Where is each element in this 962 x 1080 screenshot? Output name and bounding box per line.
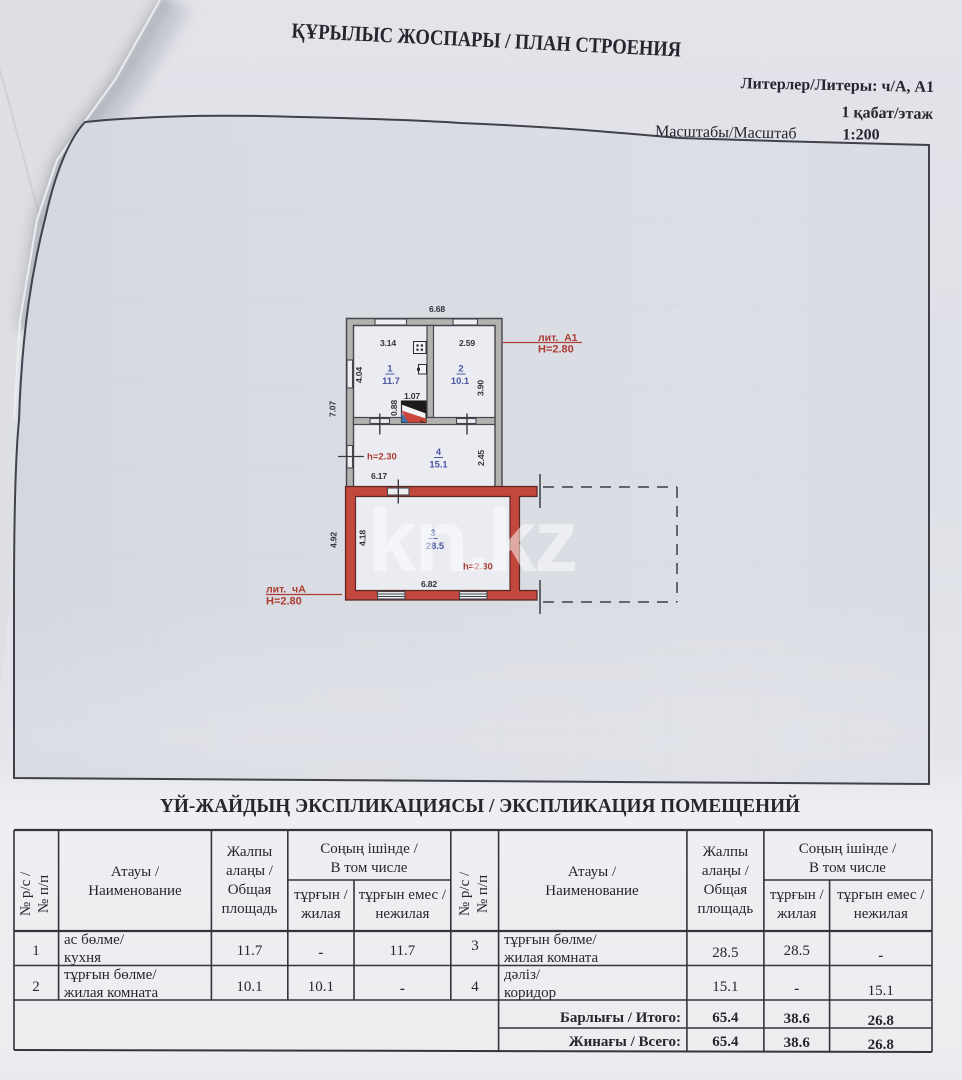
svg-text:2.59: 2.59 (459, 338, 475, 348)
svg-text:3.90: 3.90 (476, 380, 486, 396)
svg-text:Общая: Общая (704, 882, 748, 898)
svg-text:алаңы /: алаңы / (702, 863, 750, 879)
svg-text:тұрғын емес /: тұрғын емес / (837, 887, 925, 903)
svg-text:Атауы /: Атауы / (568, 864, 617, 880)
svg-text:Общая: Общая (228, 882, 272, 898)
svg-text:Соңың ішінде /: Соңың ішінде / (320, 841, 418, 857)
svg-text:В том числе: В том числе (331, 860, 408, 876)
svg-text:3.14: 3.14 (380, 338, 396, 348)
svg-text:Жалпы: Жалпы (227, 844, 272, 860)
svg-text:10.1: 10.1 (308, 979, 334, 995)
svg-text:нежилая: нежилая (854, 906, 908, 922)
svg-text:-: - (794, 981, 799, 997)
svg-text:Н=2.80: Н=2.80 (266, 596, 302, 608)
svg-text:площадь: площадь (698, 901, 754, 917)
svg-text:кухня: кухня (64, 950, 101, 966)
svg-text:жилая комната: жилая комната (503, 950, 598, 966)
svg-text:3: 3 (471, 938, 479, 954)
svg-text:2: 2 (458, 363, 463, 374)
svg-text:15.1: 15.1 (429, 459, 447, 470)
svg-text:№ р/с /: № р/с / (18, 871, 34, 916)
svg-text:тұрғын емес /: тұрғын емес / (359, 887, 447, 903)
svg-text:65.4: 65.4 (712, 1010, 739, 1026)
svg-text:№ р/с /: № р/с / (457, 871, 473, 916)
svg-text:4: 4 (471, 979, 479, 995)
svg-text:65.4: 65.4 (712, 1034, 739, 1050)
svg-text:-: - (878, 948, 883, 964)
svg-text:тұрғын /: тұрғын / (294, 887, 349, 903)
svg-text:7.07: 7.07 (328, 401, 338, 417)
svg-text:Соңың ішінде /: Соңың ішінде / (799, 841, 897, 857)
svg-text:Атауы /: Атауы / (111, 864, 160, 880)
svg-text:11.7: 11.7 (237, 943, 263, 959)
svg-text:26.8: 26.8 (868, 1037, 894, 1053)
svg-text:0.88: 0.88 (389, 400, 399, 416)
svg-text:№ п/п: № п/п (475, 875, 491, 913)
svg-text:тұрғын бөлме/: тұрғын бөлме/ (64, 967, 157, 983)
svg-text:Масштабы/Масштаб: Масштабы/Масштаб (655, 123, 797, 142)
svg-text:h=2.30: h=2.30 (367, 452, 397, 463)
svg-text:15.1: 15.1 (712, 979, 738, 995)
svg-text:Наименование: Наименование (545, 883, 639, 899)
svg-text:11.7: 11.7 (390, 943, 416, 959)
svg-text:жилая: жилая (300, 906, 341, 922)
svg-text:ҮЙ-ЖАЙДЫҢ ЭКСПЛИКАЦИЯСЫ / ЭКСП: ҮЙ-ЖАЙДЫҢ ЭКСПЛИКАЦИЯСЫ / ЭКСПЛИКАЦИЯ ПО… (160, 794, 800, 817)
svg-text:лит. чА: лит. чА (266, 584, 306, 596)
svg-text:2.45: 2.45 (476, 450, 486, 466)
svg-text:26.8: 26.8 (868, 1013, 894, 1029)
svg-text:4.04: 4.04 (354, 367, 364, 383)
svg-text:тұрғын бөлме/: тұрғын бөлме/ (504, 932, 597, 948)
svg-text:Барлығы / Итого:: Барлығы / Итого: (560, 1010, 681, 1026)
svg-text:ас бөлме/: ас бөлме/ (64, 932, 125, 948)
svg-text:Жинағы / Всего:: Жинағы / Всего: (569, 1034, 681, 1050)
svg-text:№ п/п: № п/п (36, 875, 52, 913)
svg-text:4.18: 4.18 (358, 530, 368, 546)
svg-text:28.5: 28.5 (784, 943, 810, 959)
svg-text:-: - (318, 945, 323, 961)
svg-text:15.1: 15.1 (868, 983, 894, 999)
svg-text:-: - (400, 981, 405, 997)
svg-text:1 қабат/этаж: 1 қабат/этаж (841, 104, 933, 123)
svg-text:38.6: 38.6 (784, 1035, 811, 1051)
svg-text:11.7: 11.7 (382, 375, 400, 386)
svg-text:28.5: 28.5 (712, 945, 738, 961)
svg-text:1:200: 1:200 (842, 127, 879, 144)
svg-text:Наименование: Наименование (88, 883, 182, 899)
svg-text:дәліз/: дәліз/ (504, 967, 541, 983)
svg-text:жилая: жилая (776, 906, 817, 922)
svg-text:4.92: 4.92 (329, 532, 339, 548)
svg-text:Н=2.80: Н=2.80 (538, 344, 574, 356)
svg-text:1: 1 (387, 363, 392, 374)
svg-text:6.68: 6.68 (429, 304, 445, 314)
svg-text:kn.kz: kn.kz (368, 491, 576, 590)
svg-text:10.1: 10.1 (236, 979, 262, 995)
svg-text:площадь: площадь (222, 901, 278, 917)
svg-text:жилая комната: жилая комната (63, 985, 158, 1001)
svg-text:1.07: 1.07 (404, 391, 420, 401)
svg-text:2: 2 (32, 979, 40, 995)
svg-text:В том числе: В том числе (809, 860, 886, 876)
svg-text:10.1: 10.1 (451, 375, 469, 386)
svg-text:38.6: 38.6 (784, 1011, 811, 1027)
svg-text:нежилая: нежилая (375, 906, 429, 922)
svg-text:алаңы /: алаңы / (226, 863, 274, 879)
svg-text:тұрғын /: тұрғын / (770, 887, 825, 903)
svg-text:4: 4 (436, 446, 442, 457)
svg-text:1: 1 (32, 943, 40, 959)
svg-text:Жалпы: Жалпы (703, 844, 748, 860)
svg-text:6.17: 6.17 (371, 471, 387, 481)
svg-text:коридор: коридор (504, 985, 556, 1001)
